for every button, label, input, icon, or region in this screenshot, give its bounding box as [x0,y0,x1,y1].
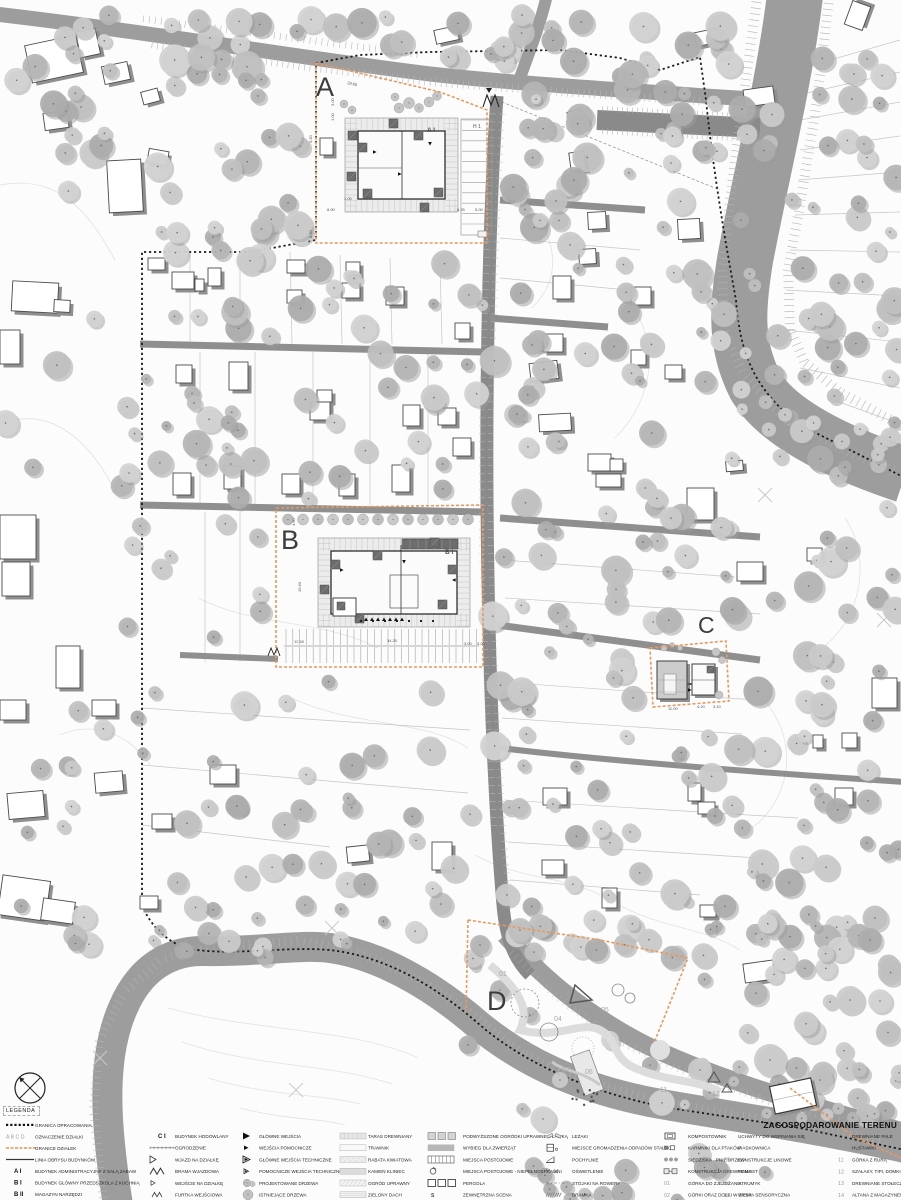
legend-item-label: STRUMYK [738,1181,761,1186]
legend-layer: GRANICA OPRACOWANIAA B C DOZNACZENIE DZI… [6,1123,901,1200]
legend-number: 02 [664,1193,670,1199]
building [2,562,34,600]
building [320,138,337,159]
legend-number: 11 [838,1158,844,1164]
swatch-trawnik-icon [340,1145,366,1151]
detail-plot-a [340,92,492,238]
map-annotation: A I [427,127,435,134]
legend-item-label: POCHYLNIE [572,1157,599,1162]
building [0,700,30,724]
text-icon: A I [14,1169,22,1175]
building [588,211,611,233]
map-annotation: 34.20 [387,638,398,643]
legend-item-label: POMOCNICZE WEJŚCIA TECHNICZNE [259,1167,342,1174]
num-icon: 13 [838,1181,844,1187]
building [229,362,252,394]
map-annotation: 04 [554,1016,562,1023]
building [148,258,169,274]
map-annotation: C [698,612,715,638]
wood-icon [664,1169,677,1174]
swatch-wybieg-icon [428,1145,454,1151]
legend-item-label: BRAMA WJAZDOWA [175,1169,220,1174]
map-annotation: B I [445,549,454,556]
plot-dashes-icon [6,1147,36,1149]
map-annotation: 29.65 [347,80,359,87]
building [152,814,176,833]
legend-item-label: WEJŚCIE NA DZIAŁKĘ [175,1179,223,1186]
map-annotation: 3.00 [464,641,473,646]
legend-item-label: ZEWNĘTRZNA SCENA [463,1193,513,1198]
legend-item-label: ALTANA Z MAGAZYNEM [852,1193,901,1198]
legend-item-label: FURTKA WEJŚCIOWA [175,1191,223,1198]
tri-filled-icon [243,1133,250,1140]
building [94,771,127,797]
num-icon: 14 [838,1193,844,1199]
map-annotation: 3.10 [713,704,722,709]
text-icon: B I [14,1181,22,1187]
legend-item-label: SZAŁASY, TIPI, DOMKI [852,1169,901,1174]
swatch-dach-icon [340,1192,366,1198]
legend-header: LEGENDA [3,1106,40,1116]
legend-scena-icon: S [431,1193,435,1199]
legend-item-label: STOJAKI NA ROWERY [572,1181,620,1186]
legend-item-label: GRANICE DZIAŁEK [35,1146,77,1151]
map-annotation: 4.60 [291,517,296,526]
tri-open-icon [150,1156,156,1163]
legend-item-label: RABATA KWIATOWA [368,1157,413,1162]
stumps-icon [664,1158,677,1161]
legend-item-label: GŁÓWNE WEJŚCIA [259,1132,302,1139]
swatch-taras-icon [340,1133,366,1139]
legend-item-label: LEŻAKI [572,1133,588,1139]
legend-item-label: ZIELONY DACH [368,1193,402,1198]
wheel-icon [430,1167,436,1174]
legend-item-label: BUDYNEK ADMINISTRACYJNY Z SALĄ ZABAW [35,1169,137,1174]
building [596,474,625,491]
legend-abcd: A B C D [6,1135,25,1141]
site-plan-canvas: ABCDA IH 1B I29.653.001.003.508.508.901.… [0,0,901,1200]
legend-item-label: MAGAZYN NARZĘDZI [35,1192,82,1197]
boundary-dots-icon [6,1124,33,1126]
map-annotation: 3.20 [477,641,486,646]
tri-tech-icon [243,1156,250,1163]
num-icon: 05 [724,1158,730,1164]
abcd-icon: A B C D [6,1135,25,1141]
legend-item-label: SIEDZISKA - PNIE DRZEW [688,1157,745,1162]
legend-item-label: BUDYNEK GŁÓWNY PRZEDSZKOLA Z KUCHNIĄ [35,1179,141,1185]
legend-item-label: OGRÓD UPRAWNY [368,1180,410,1186]
building [542,860,568,879]
legend-number: 06 [724,1169,730,1175]
num-icon: 06 [724,1169,730,1175]
building [208,268,225,290]
building [842,733,861,752]
ramp-icon [546,1157,554,1163]
building [172,272,198,293]
map-annotation: 3.00 [330,97,335,106]
map-annotation: 11.00 [668,706,678,711]
page-title: ZAGOSPODAROWANIE TERENU [763,1121,897,1130]
map-annotation: 8.50 [308,229,313,238]
map-annotation: 19.60 [297,581,302,592]
legend-marker-label: B II [14,1192,24,1198]
legend-item-label: OZNACZENIE DZIAŁKI [35,1134,83,1139]
map-annotation: 1.00 [344,196,353,201]
stalls-icon [428,1156,454,1163]
building [92,700,120,720]
legend-item-label: KOMPOSTOWNIK [688,1134,727,1139]
legend-column: GŁÓWNE WEJŚCIAWEJŚCIA POMOCNICZEGŁÓWNE W… [243,1132,342,1200]
gate-arrow-icon [486,88,492,93]
text-icon: C I [158,1134,166,1140]
building [677,218,704,243]
legend-item-label: ISTNIEJĄCE DRZEWA [259,1193,307,1198]
legend-number: 10 [838,1146,844,1152]
legend-column: TARAS DREWNIANYTRAWNIKRABATA KWIATOWAKAM… [340,1133,413,1198]
legend-item-label: KAMIEŃ KLINIEC [368,1168,405,1174]
legend-item-label: DREWNIANE PALE [852,1134,893,1139]
building [665,365,686,383]
swatch-rabata-icon [340,1157,366,1163]
building [0,330,24,368]
map-annotation: D [487,986,507,1016]
map-annotation: 05 [601,1007,609,1014]
swatch-kamien-icon [340,1168,366,1174]
solid-line-icon [6,1159,34,1160]
building [453,438,475,460]
map-annotation: B [281,525,299,555]
waste-icon [547,1144,558,1151]
building [176,365,196,387]
map-annotation: 3.00 [291,530,296,539]
num-icon: 11 [838,1158,844,1164]
num-icon: 02 [664,1193,670,1199]
num-icon: 08 [724,1193,730,1199]
legend-number: 01 [664,1181,670,1187]
tree-old-icon [243,1190,253,1200]
building [7,790,49,823]
raised-beds-icon [428,1133,456,1140]
swatch-ogrod-icon [340,1180,366,1186]
map-annotation: 06 [585,1069,593,1076]
tri-tech-sm-icon [244,1169,249,1174]
legend-item-label: KONSTRUKCJE LINOWE [738,1157,792,1162]
legend-item-label: GÓRKA Z RURĄ [852,1156,888,1162]
legend-item-label: WYBIEG DLA ZWIERZĄT [463,1146,516,1151]
legend-item-label: TRAWNIK [368,1146,390,1151]
num-icon: 10 [838,1146,844,1152]
map-annotation: A [316,72,334,102]
legend-item-label: PIASKOWNICA [738,1146,771,1151]
legend-number: 14 [838,1193,844,1199]
legend-number: 05 [724,1158,730,1164]
site-plan-map: ABCDA IH 1B I29.653.001.003.508.508.901.… [0,0,901,1200]
legend-item-label: MIEJSCE GROMADZENIA ODPADÓW STAŁYCH [572,1145,674,1151]
legend-item-label: PERGOLA [463,1181,486,1186]
detail-plot-b [283,514,480,663]
building [872,678,901,712]
legend-marker-label: A I [14,1169,22,1175]
building [813,735,827,752]
legend-item-label: OGRODZENIE [175,1146,206,1151]
building [141,87,165,108]
tri-open-sm-icon [151,1181,155,1186]
legend-item-label: LINIA OBRYSU BUDYNKÓW [35,1156,96,1162]
building [553,276,575,303]
legend-item-label: HUŚTAWKI [852,1144,876,1151]
fence-icon [150,1146,174,1149]
map-annotation: 1.00 [330,112,335,121]
num-icon: 12 [838,1169,844,1175]
legend-item-label: MIEJSCA POSTOJOWE [463,1157,513,1162]
map-annotation: 11 [660,1087,667,1094]
building [107,159,147,216]
building [140,896,162,913]
legend-item-label: WYSPA SENSORYCZNA [738,1193,791,1198]
north-compass [15,1073,45,1103]
tree-new-icon [243,1179,255,1187]
building [844,0,875,32]
legend-item-label: DREWNIANE STOŁECZKI [852,1181,901,1186]
text-icon: B II [14,1192,24,1198]
building [0,515,40,563]
legend-item-label: TARAS DREWNIANY [368,1134,412,1139]
building [737,562,767,585]
map-annotation: 5.00 [475,207,484,212]
map-annotation: 4.20 [697,704,706,709]
num-icon: 01 [664,1181,670,1187]
compost-icon [665,1133,675,1139]
legend-number: 07 [724,1181,730,1187]
map-annotation: 08 [575,1094,583,1101]
legend-item-label: OŚWIETLENIE [572,1167,603,1174]
legend-item-label: GÓRKA DO ZJEŻDŻANIA [688,1180,743,1186]
legend-item-label: WJAZD NA DZIAŁKĘ [175,1157,219,1162]
legend-column: C IBUDYNEK HODOWLANYOGRODZENIEWJAZD NA D… [150,1134,229,1198]
pergola-icon [428,1180,456,1187]
legend-item-label: BRAMKA [572,1193,592,1198]
map-annotation: 3.50 [308,134,313,143]
legend-marker-label: B I [14,1181,22,1187]
legend-number: 08 [724,1193,730,1199]
building [403,405,424,430]
legend-item-label: BUDYNEK HODOWLANY [175,1134,229,1139]
legend-item-label: WEJŚCIA POMOCNICZE [259,1144,312,1151]
legend-item-label: GŁÓWNE WEJŚCIA TECHNICZNE [259,1155,332,1162]
map-annotation: 12.50 [294,639,305,644]
legend-item-label: UCHWYTY DO WSPINANIA SIĘ [738,1134,805,1139]
legend-item-label: KARMNIKI DLA PTAKÓW [688,1145,742,1151]
map-annotation: 07 [562,1067,570,1074]
building [455,323,474,343]
legend-marker-label: C I [158,1134,166,1140]
map-annotation: 12 [712,1091,720,1098]
map-annotation: 6.25 [457,207,466,212]
building [539,413,576,435]
legend-item-label: GRANICA OPRACOWANIA [35,1123,93,1128]
legend-number: 13 [838,1181,844,1187]
tri-filled-sm-icon [244,1146,249,1150]
gate-m-icon [150,1168,164,1174]
map-annotation: 14 [754,1094,762,1101]
legend-number: 12 [838,1169,844,1175]
building [56,646,84,692]
gate-m-sm-icon [152,1192,162,1197]
legend-item-label: PROJEKTOWANE DRZEWA [259,1181,319,1186]
scena-icon: S [431,1193,435,1199]
num-icon: 07 [724,1181,730,1187]
map-annotation: H 1 [473,124,481,130]
building [173,473,195,499]
map-annotation: 01 [499,971,507,978]
map-annotation: 8.90 [327,207,336,212]
legend-item-label: POMOST [738,1169,758,1174]
